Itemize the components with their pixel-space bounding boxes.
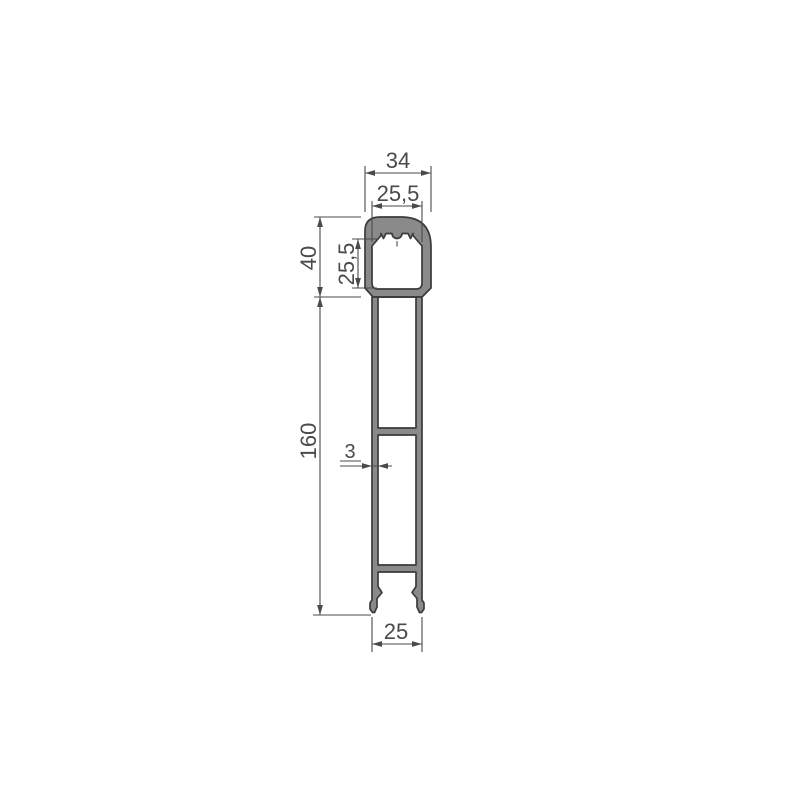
dimension-lines [313, 297, 371, 615]
dim-label-bottom-width: 25 [384, 619, 408, 644]
dim-label-head-inner-width: 25,5 [377, 181, 420, 206]
dim-wall-thickness: 3 [340, 441, 392, 469]
dim-label-head-inner-height: 25,5 [334, 243, 359, 286]
profile-body [370, 297, 424, 613]
dim-label-body-height: 160 [296, 423, 321, 460]
profile-head [365, 217, 431, 297]
technical-drawing-canvas: 34 25,5 40 25,5 [0, 0, 800, 800]
dim-label-wall-thickness: 3 [344, 441, 355, 463]
dim-bottom-width: 25 [372, 617, 422, 652]
dim-label-head-outer-width: 34 [386, 148, 410, 173]
dim-label-head-outer-height: 40 [296, 246, 321, 270]
dim-body-height: 160 [296, 297, 371, 615]
profile-cross-section-drawing: 34 25,5 40 25,5 [0, 0, 800, 800]
profile-geometry [365, 217, 431, 613]
